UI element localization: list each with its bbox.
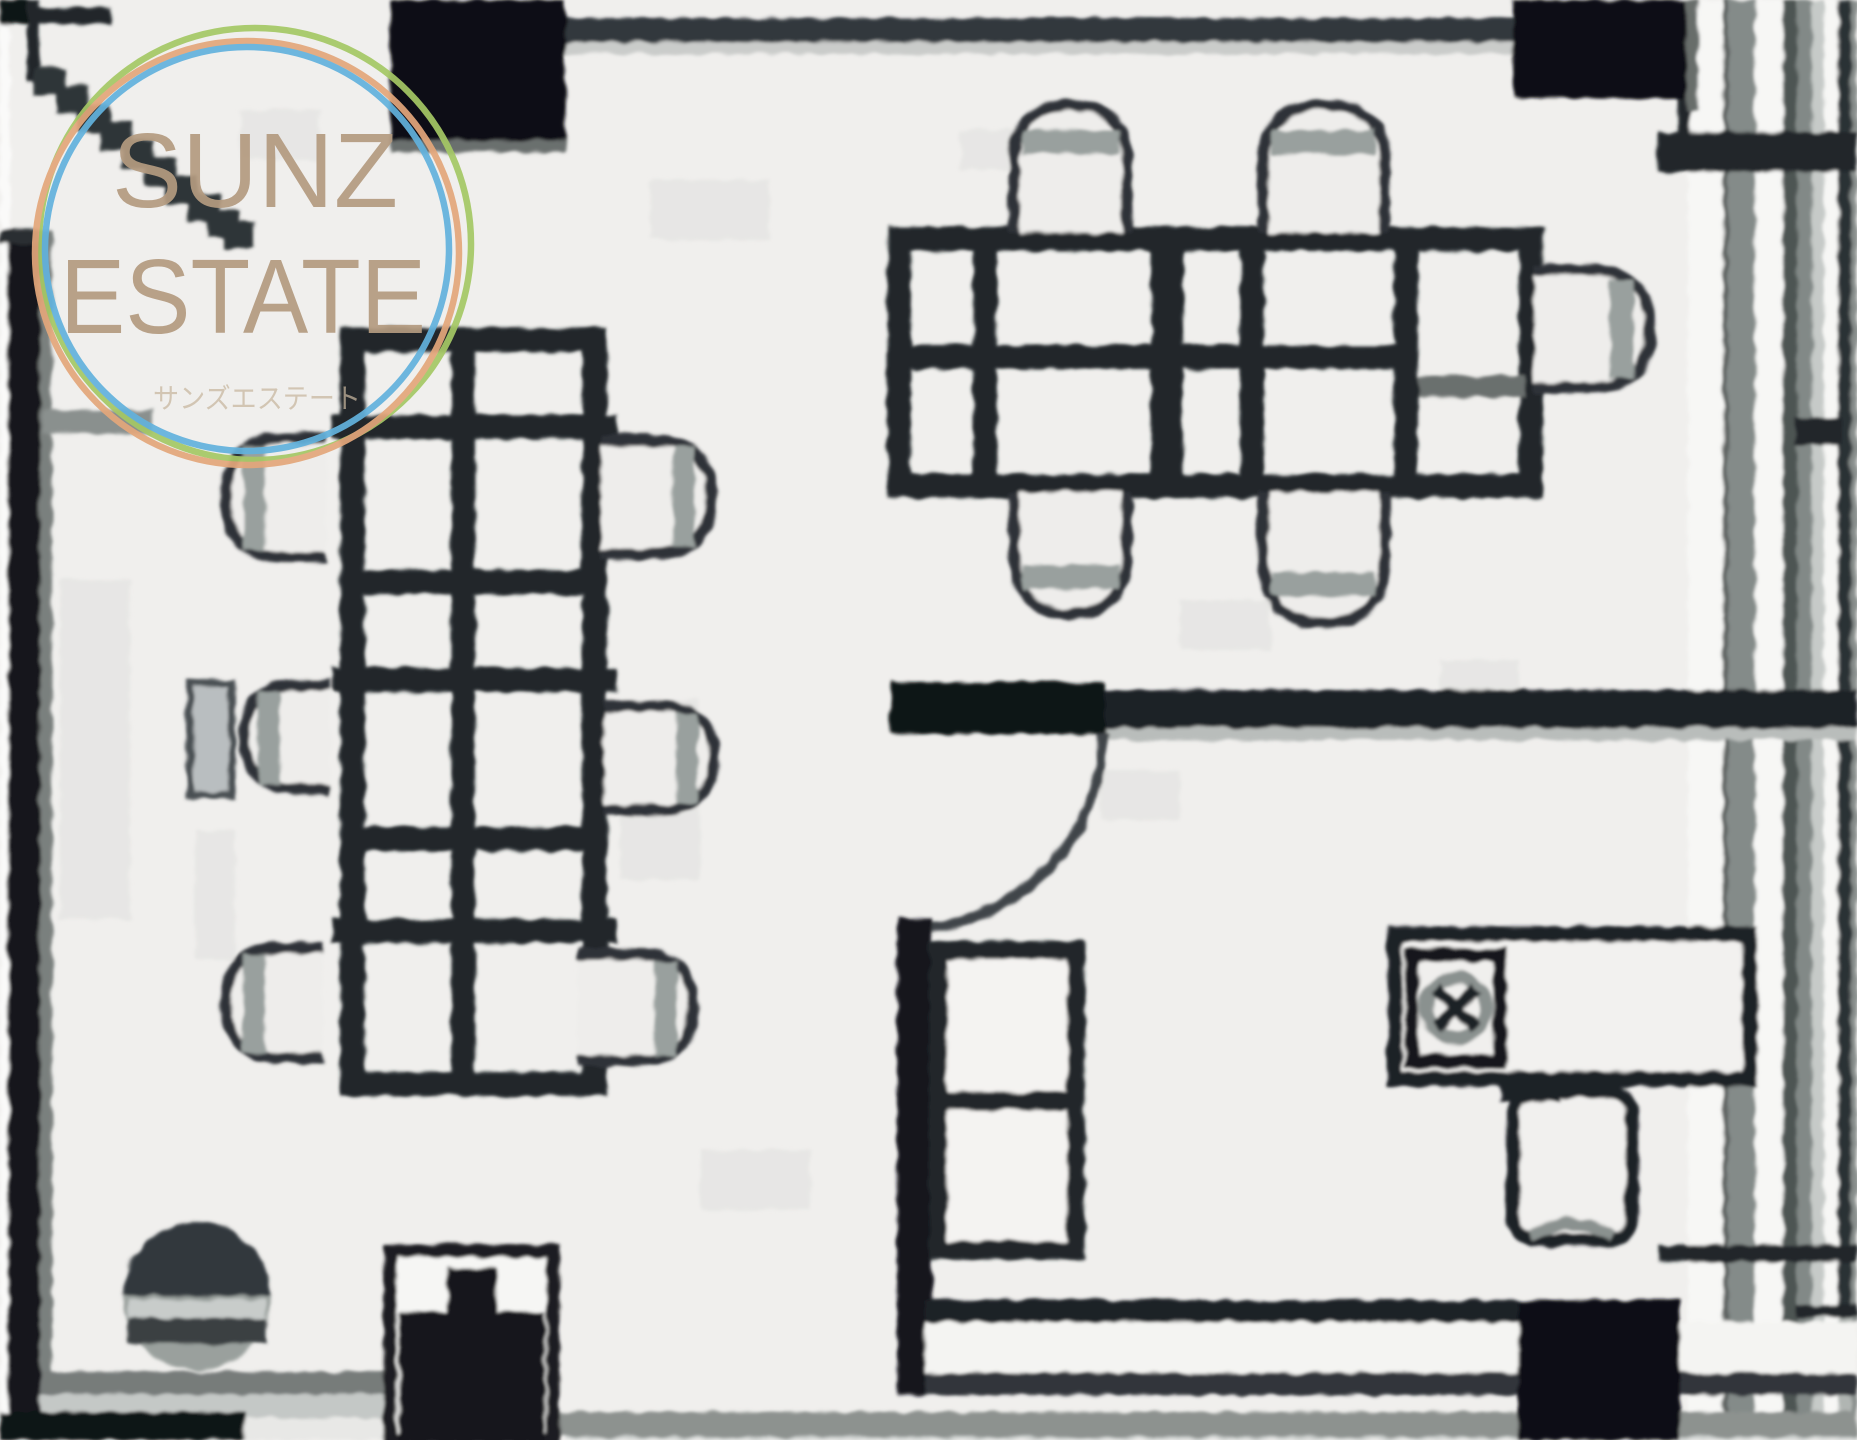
- svg-text:SUNZ: SUNZ: [112, 112, 398, 230]
- svg-text:ESTATE: ESTATE: [60, 238, 426, 356]
- svg-text:サンズエステート: サンズエステート: [153, 383, 361, 414]
